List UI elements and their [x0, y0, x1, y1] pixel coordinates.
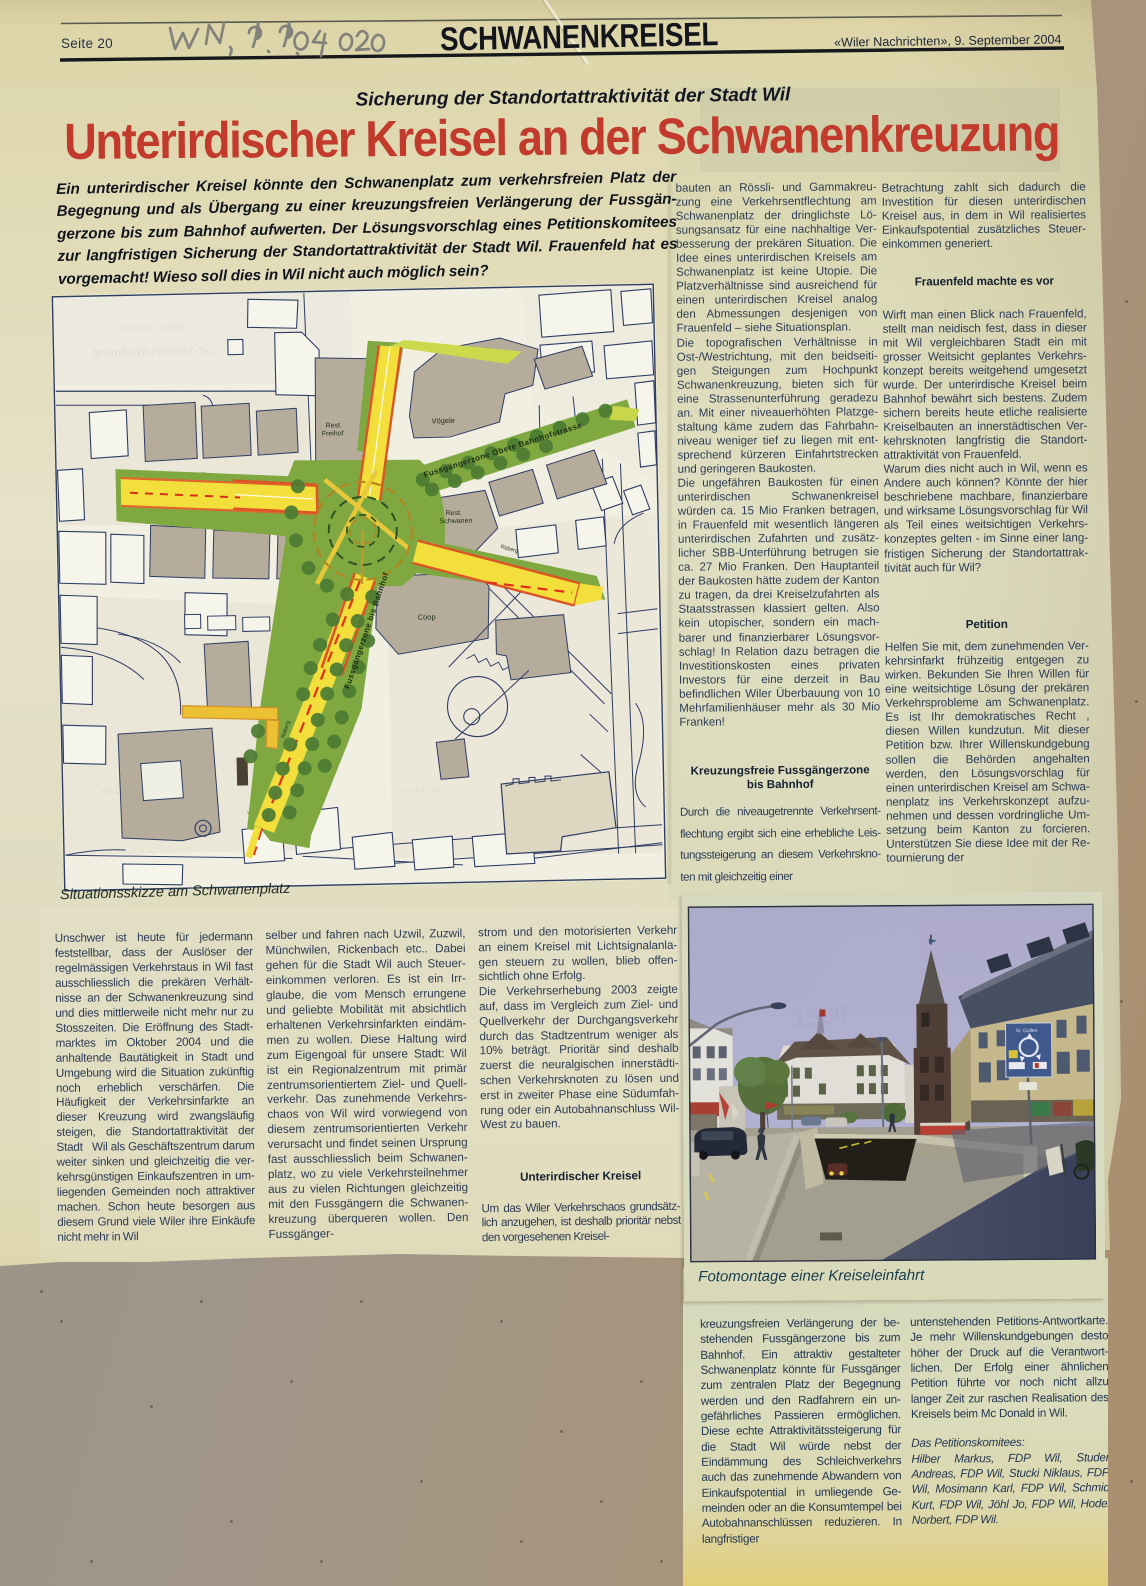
svg-text:Coop: Coop: [418, 612, 436, 621]
svg-text:Schwanen: Schwanen: [440, 518, 473, 526]
svg-text:Rest.: Rest.: [326, 422, 343, 429]
svg-text:…имnaг пуW: …имnaг пуW: [106, 320, 183, 336]
svg-text:Vögele: Vögele: [431, 416, 455, 425]
svg-text:St. Gallen: St. Gallen: [1016, 1028, 1038, 1034]
svg-text:gnunhoW-remmiZ-½…: gnunhoW-remmiZ-½…: [92, 343, 221, 360]
svg-text:Freihof: Freihof: [322, 430, 344, 437]
svg-text:Rest.: Rest.: [445, 510, 462, 517]
svg-text:…nehcsin…: …nehcsin…: [391, 783, 455, 796]
